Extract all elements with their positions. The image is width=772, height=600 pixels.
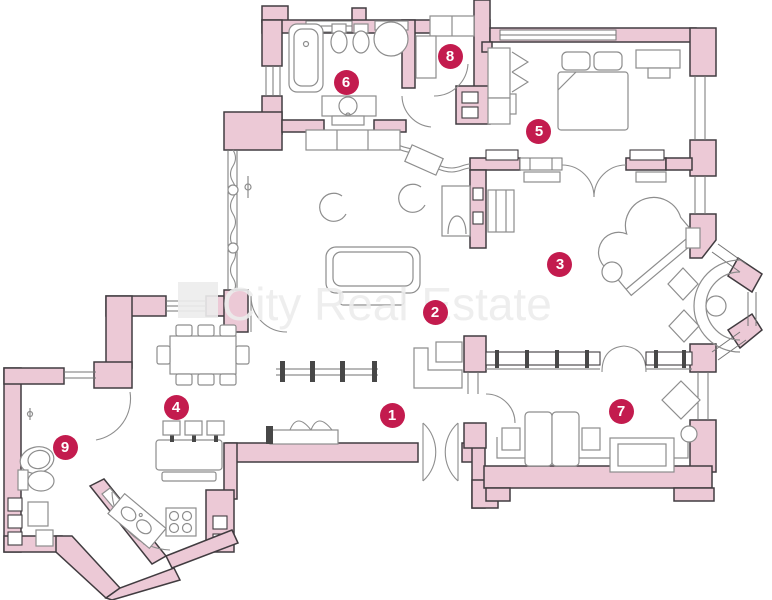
marker-layer: 123456789 bbox=[0, 0, 772, 600]
room-marker-2: 2 bbox=[423, 300, 448, 325]
floorplan-canvas: City Real Estate 123456789 bbox=[0, 0, 772, 600]
room-marker-6: 6 bbox=[334, 70, 359, 95]
room-marker-9: 9 bbox=[53, 435, 78, 460]
room-marker-1: 1 bbox=[380, 403, 405, 428]
room-marker-5: 5 bbox=[526, 119, 551, 144]
room-marker-8: 8 bbox=[438, 44, 463, 69]
room-marker-3: 3 bbox=[547, 252, 572, 277]
room-marker-7: 7 bbox=[609, 399, 634, 424]
room-marker-4: 4 bbox=[164, 395, 189, 420]
